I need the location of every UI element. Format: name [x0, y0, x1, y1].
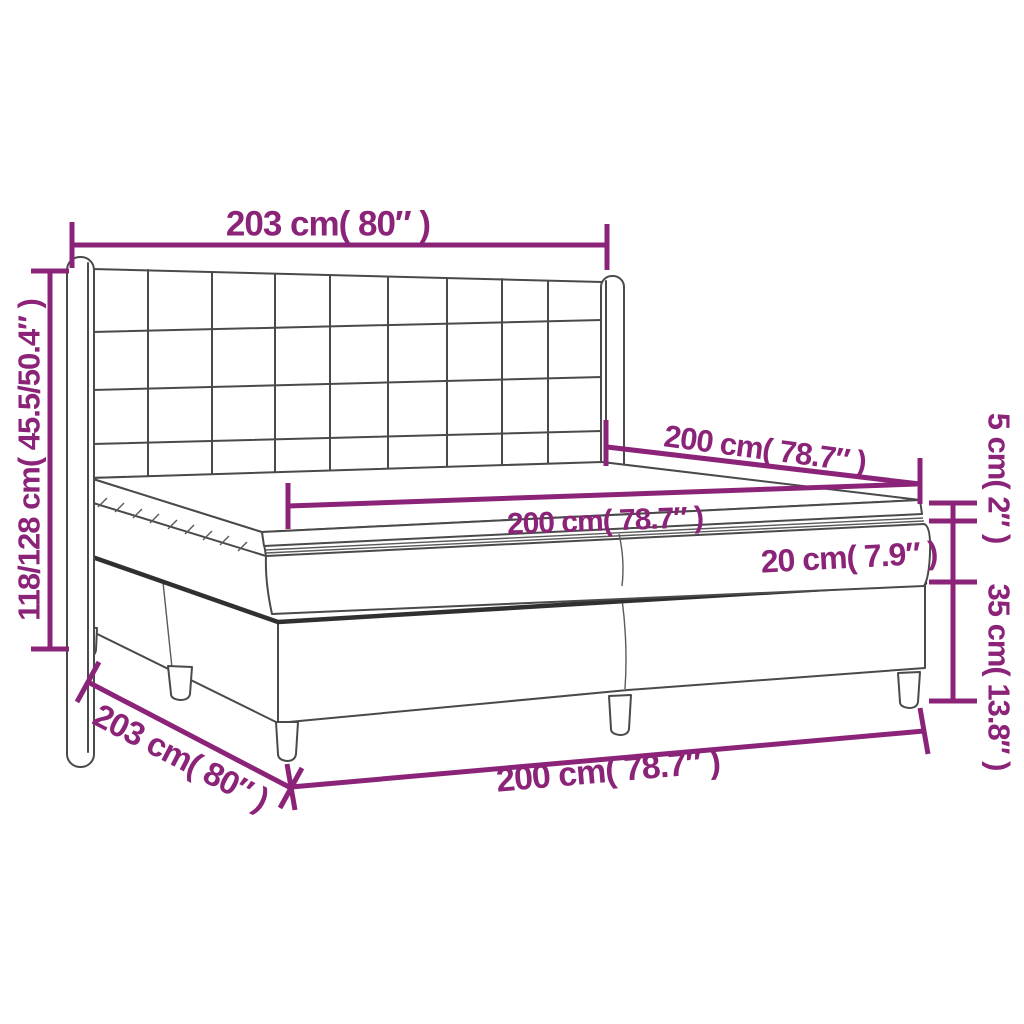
- leg-mid-left: [168, 666, 192, 700]
- dim-label-base-width: 200 cm( 78.7″ ): [495, 742, 722, 799]
- dim-label-headboard-width: 203 cm( 80″ ): [226, 205, 430, 244]
- dim-base-width: 200 cm( 78.7″ ): [287, 708, 928, 810]
- dim-headboard-width: 203 cm( 80″ ): [72, 205, 607, 271]
- dimension-diagram: 203 cm( 80″ ) 118/128 cm( 45.5/50.4″ ) 2…: [0, 0, 1024, 1024]
- leg-front-middle: [609, 695, 631, 735]
- dim-label-base-height: 35 cm( 13.8″ ): [982, 584, 1017, 771]
- leg-front-left: [276, 722, 298, 761]
- dim-label-base-depth: 203 cm( 80″ ): [87, 696, 274, 817]
- dim-label-overall-height: 118/128 cm( 45.5/50.4″ ): [12, 299, 47, 621]
- dim-label-mattress-depth: 200 cm( 78.7″ ): [662, 418, 868, 479]
- leg-front-right: [898, 672, 920, 708]
- dim-right-heights: 5 cm( 2″ ) 35 cm( 13.8″ ): [929, 413, 1017, 771]
- headboard: [92, 269, 602, 478]
- dim-overall-height: 118/128 cm( 45.5/50.4″ ): [12, 271, 70, 649]
- bed-line-drawing: [67, 257, 930, 767]
- dim-label-topper-thickness: 5 cm( 2″ ): [982, 413, 1017, 544]
- dim-label-mattress-width: 200 cm( 78.7″ ): [506, 501, 703, 541]
